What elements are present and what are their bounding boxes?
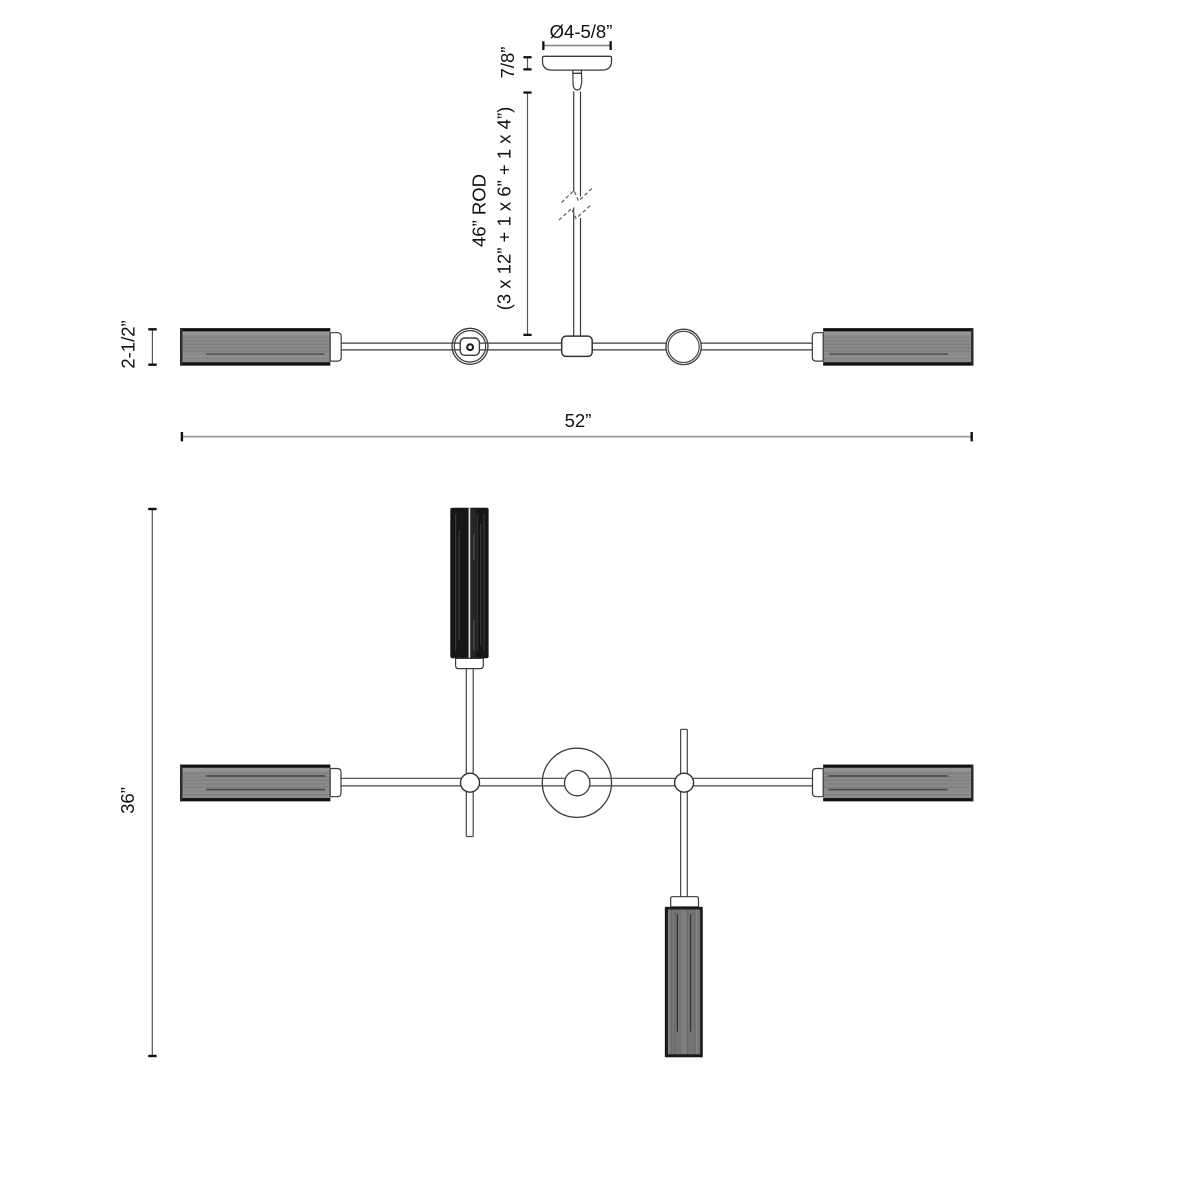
svg-text:Ø4-5/8”: Ø4-5/8” (550, 21, 613, 42)
svg-text:36”: 36” (117, 787, 138, 814)
svg-text:52”: 52” (565, 410, 592, 431)
svg-text:46” ROD: 46” ROD (469, 174, 490, 247)
svg-text:2-1/2”: 2-1/2” (117, 320, 138, 368)
svg-text:7/8”: 7/8” (497, 47, 518, 79)
svg-text:(3 x 12” + 1 x 6” + 1 x 4”): (3 x 12” + 1 x 6” + 1 x 4”) (494, 107, 515, 311)
